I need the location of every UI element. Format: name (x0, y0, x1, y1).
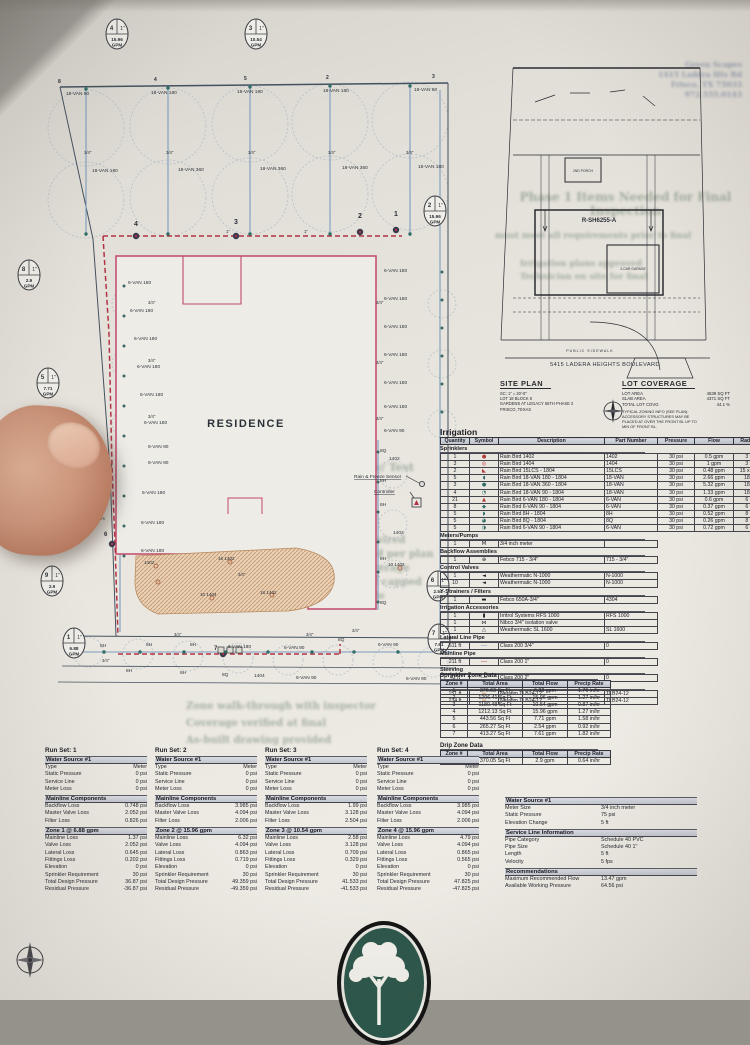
plan-label: 6-VAN 180 (384, 268, 407, 274)
row-label: Static Pressure (155, 771, 192, 778)
row-value: 2.58 psi (348, 835, 367, 842)
row-label: Master Valve Loss (155, 810, 199, 817)
plan-label: 6-VAN 180 (384, 352, 407, 358)
sprinkler-row: 3◎ Rain Bird 14041404 30 psi1 gpm3 ft (441, 461, 750, 468)
sprinkler-row: 3● Rain Bird 18-VAN 360 - 180418-VAN 30 … (441, 482, 750, 489)
plan-label: 5 (244, 76, 247, 82)
mainline-components-bar: Mainline Components (377, 795, 479, 803)
data-row: Pipe CategorySchedule 40 PVC (505, 837, 697, 844)
data-row: Valve Loss4.094 psi (377, 842, 479, 849)
lot-coverage-title: LOT COVERAGE (622, 379, 695, 389)
zone-flag: 51"7.71GPM (37, 368, 59, 398)
zone-flag: 21"15.96GPM (424, 196, 446, 226)
irrigation-legend: Irrigation QuantitySymbolDescriptionPart… (440, 427, 745, 705)
legend-row: 611 ft──Class 200 3/4"0 (441, 642, 658, 649)
zone-header-cell: Precip Rate (568, 751, 611, 758)
row-value: 0 psi (356, 771, 367, 778)
row-value: 30 psi (243, 872, 257, 879)
plan-label: 6-VAN 180 (140, 392, 163, 398)
flag-flow-value: 2.9 (49, 584, 56, 589)
zone-header-cell: Total Area (468, 681, 523, 688)
row-value: 4.79 psi (460, 835, 479, 842)
data-row: TOTAL LOT COVG44.1 % (622, 402, 730, 407)
flag-flow-value: 15.96 (429, 214, 441, 219)
flag-flow-value: 15.96 (111, 37, 123, 42)
bleed-line: Coverage verified at final (186, 715, 436, 732)
plan-label: 1" (304, 229, 308, 234)
plan-label: 18-VAN 90 (66, 91, 89, 97)
data-row: TypeMeter (45, 764, 147, 771)
plan-label: 18-VAN 180 (237, 89, 263, 95)
data-row: Elevation0 psi (45, 864, 147, 871)
plan-label: 6-VAN 180 (228, 644, 251, 650)
zone-flag: 31"10.54GPM (245, 19, 267, 49)
row-value: 0.645 psi (125, 850, 147, 857)
data-row: Master Valve Loss2.052 psi (45, 810, 147, 817)
irrigation-header-cell: Radius (734, 438, 750, 445)
row-value: 1.37 psi (128, 835, 147, 842)
row-label: Service Line (155, 779, 185, 786)
plan-label: 6-VAN 180 (144, 420, 167, 426)
flag-flow-value: 6.88 (70, 646, 79, 651)
row-label: Service Line (377, 779, 407, 786)
north-arrow-icon (600, 397, 626, 425)
row-value: 36.87 psi (125, 879, 147, 886)
sprinkler-row: 4◔ Rain Bird 18-VAN 90 - 180418-VAN 30 p… (441, 489, 750, 496)
data-row: Meter Loss0 psi (265, 786, 367, 793)
row-label: Backflow Loss (377, 803, 411, 810)
plan-label: 8Q (222, 672, 229, 678)
zone-flag: 41"15.96GPM (106, 19, 128, 49)
flag-gpm-label: GPM (251, 43, 262, 48)
data-row: Backflow Loss1.99 psi (265, 803, 367, 810)
run-set-4: Run Set: 4 Water Source #1 TypeMeterStat… (377, 747, 479, 893)
flag-valve-size: 1" (120, 26, 125, 32)
irrigation-header-cell: Part Number (605, 438, 658, 445)
row-value: 4.094 psi (235, 842, 257, 849)
flag-valve-size: 1" (438, 203, 443, 209)
sidewalk-label: PUBLIC SIDEWALK (566, 349, 613, 353)
row-value: Meter (465, 764, 479, 771)
section-title: Meters/Pumps (440, 533, 645, 540)
zone-row: 6265.27 Sq Ft2.54 gpm0.92 in/hr (441, 723, 611, 730)
section-table: 1M3/4 inch meter (440, 540, 658, 548)
row-label: Static Pressure (45, 771, 82, 778)
row-label: Backflow Loss (265, 803, 299, 810)
legend-row: 1⊕Febco 715 - 3/4"715 - 3/4" (441, 557, 658, 564)
plan-label: 6-VAN 180 (384, 324, 407, 330)
row-value: 0 psi (468, 786, 479, 793)
row-value: 0 psi (136, 779, 147, 786)
run-set-title: Run Set: 1 (45, 747, 147, 754)
zone-row: 21206.41 Sq Ft15.96 gpm1.27 in/hr (441, 695, 611, 702)
zone-header-row: Zone #Total AreaTotal FlowPrecip Rate (441, 681, 611, 688)
data-row: TypeMeter (265, 764, 367, 771)
sprinkler-row: 5◑ Rain Bird 6-VAN 90 - 18046-VAN 30 psi… (441, 525, 750, 532)
plan-label: 3/4" (248, 150, 256, 155)
row-value: 3.985 psi (235, 803, 257, 810)
zone-header-cell: Total Flow (523, 751, 568, 758)
mainline-components-bar: Mainline Components (155, 795, 257, 803)
plan-label: 10 1402 (388, 562, 405, 567)
section-title: Lateral Line Pipe (440, 635, 645, 642)
row-value: Meter (353, 764, 367, 771)
recommendations-bar: Recommendations (505, 868, 697, 876)
row-label: Total Design Pressure (377, 879, 430, 886)
flag-flow-value: 10.54 (250, 37, 262, 42)
row-label: Elevation (45, 864, 67, 871)
section-table: 1▬Febco 650A-3/4"4304 (440, 596, 658, 604)
row-value: 5 ft (601, 820, 697, 827)
row-value: 0.863 psi (235, 850, 257, 857)
data-row: Master Valve Loss3.128 psi (265, 810, 367, 817)
row-label: Static Pressure (377, 771, 414, 778)
flag-valve-size: 1" (55, 573, 60, 579)
plan-label: 18-VAN 180 (418, 164, 444, 170)
plan-label: 6-VAN 90 (406, 676, 427, 682)
legend-row: 1◄Weathermatic N-1000N-1000 (441, 573, 658, 580)
plan-label: 8H (190, 642, 197, 648)
row-label: Mainline Loss (155, 835, 188, 842)
plan-label: 4 (134, 221, 138, 228)
row-label: Meter Loss (377, 786, 404, 793)
compass-rose-icon (10, 936, 50, 986)
row-value: 0.748 psi (125, 803, 147, 810)
row-value: 0.865 psi (457, 850, 479, 857)
row-label: Mainline Loss (377, 835, 410, 842)
row-label: Type (265, 764, 277, 771)
row-value: Schedule 40 PVC (601, 837, 697, 844)
row-value: 4.094 psi (235, 810, 257, 817)
irrigation-header-cell: Quantity (441, 438, 470, 445)
data-row: Backflow Loss3.985 psi (377, 803, 479, 810)
plan-label: 3/4" (352, 628, 360, 633)
plan-label: 6-VAN 180 (134, 336, 157, 342)
row-value: 6.32 psi (238, 835, 257, 842)
zone-header-cell: Precip Rate (568, 681, 611, 688)
sprinkler-row: 1● Rain Bird 14021402 30 psi0.5 gpm3 ft (441, 454, 750, 461)
row-label: Residual Pressure (265, 886, 309, 893)
row-value: 0.719 psi (235, 857, 257, 864)
plan-label: 3/4" (376, 416, 384, 421)
data-row: Mainline Loss1.37 psi (45, 835, 147, 842)
section-title: Backflow Assemblies (440, 549, 645, 556)
irrigation-header-cell: Symbol (470, 438, 499, 445)
row-value: 41.533 psi (342, 879, 367, 886)
plan-label: 8H (126, 668, 133, 674)
irrigation-header-row: QuantitySymbolDescriptionPart NumberPres… (441, 438, 750, 445)
plan-label: 1 (394, 211, 398, 218)
section-table: 1▮Irritrol Systems RFS 1000RFS 10001⋈Nib… (440, 612, 658, 634)
data-row: Mainline Loss6.32 psi (155, 835, 257, 842)
data-row: Residual Pressure-49.359 psi (155, 886, 257, 893)
sprinkler-row: 5◖ Rain Bird 18-VAN 180 - 180418-VAN 30 … (441, 475, 750, 482)
plan-label: 3/4" (376, 360, 384, 365)
row-label: Filter Loss (45, 818, 70, 825)
summary-water-source-bar: Water Source #1 (505, 797, 697, 805)
plan-label: 6-VAN 180 (384, 380, 407, 386)
data-row: Static Pressure0 psi (155, 771, 257, 778)
sprinkler-zone-table: Zone #Total AreaTotal FlowPrecip Rate 13… (440, 680, 611, 738)
row-label: Type (377, 764, 389, 771)
data-row: Velocity5 fps (505, 859, 697, 866)
zone-bar: Zone 3 @ 10.54 gpm (265, 827, 367, 835)
plan-label: 18-VAN 360 (260, 166, 286, 172)
plan-label: 3 (234, 219, 238, 226)
row-label: Elevation (377, 864, 399, 871)
row-value: 2.052 psi (125, 842, 147, 849)
plan-label: 8Q (338, 637, 345, 643)
sprinkler-row: 5◗ Rain Bird 8H - 18048H 30 psi0.52 gpm8… (441, 510, 750, 517)
data-row: Elevation Change5 ft (505, 820, 697, 827)
zone-header-cell: Total Flow (523, 681, 568, 688)
plan-label: 2 (326, 75, 329, 81)
zone-flag: 81"2.9GPM (18, 260, 40, 290)
data-row: Total Design Pressure47.825 psi (377, 879, 479, 886)
data-row: Valve Loss3.128 psi (265, 842, 367, 849)
plan-label: 6-VAN 180 (384, 296, 407, 302)
zone-bar: Zone 2 @ 15.96 gpm (155, 827, 257, 835)
data-row: Static Pressure0 psi (45, 771, 147, 778)
data-row: Total Design Pressure36.87 psi (45, 879, 147, 886)
plan-label: 8H (180, 670, 187, 676)
data-row: Meter Loss0 psi (155, 786, 257, 793)
row-label: Backflow Loss (155, 803, 189, 810)
row-value: 13.47 gpm (601, 876, 697, 883)
row-value: 0 psi (468, 864, 479, 871)
row-label: Lateral Loss (265, 850, 294, 857)
plan-label: 6-VAN 90 (148, 444, 169, 450)
data-row: Total Design Pressure41.533 psi (265, 879, 367, 886)
plan-label: 6-VAN 90 (384, 428, 405, 434)
plan-label: 6-VAN 90 (148, 460, 169, 466)
plan-label: Rain & Freeze Sensor (354, 474, 402, 480)
plan-label: 8H (380, 502, 387, 508)
water-source-summary: Water Source #1 Meter Size3/4 inch meter… (505, 795, 697, 891)
water-source-bar: Water Source #1 (45, 756, 147, 764)
row-value: 4.094 psi (457, 810, 479, 817)
row-label: Length (505, 851, 601, 858)
data-row: Pipe SizeSchedule 40 1" (505, 844, 697, 851)
water-source-bar: Water Source #1 (377, 756, 479, 764)
flag-valve-size: 1" (259, 26, 264, 32)
bleed-list3: Zone walk-through with inspectorCoverage… (186, 698, 436, 749)
plan-label: 18 1402 (260, 590, 277, 595)
plan-label: 3/4" (174, 632, 182, 637)
data-row: Master Valve Loss4.094 psi (155, 810, 257, 817)
row-label: Meter Loss (265, 786, 292, 793)
lot-coverage-rows: LOT AREA4639 SQ FTSLAB AREA4371 SQ FTTOT… (622, 391, 738, 407)
row-value: 0 psi (246, 779, 257, 786)
section-table: 1◄Weathermatic N-1000N-100010◄Weathermat… (440, 572, 658, 587)
data-row: Valve Loss4.094 psi (155, 842, 257, 849)
plan-label: 3/4" (166, 150, 174, 155)
data-row: Fittings Loss0.329 psi (265, 857, 367, 864)
plan-label: 18-VAN 90 (414, 87, 437, 93)
legend-row: 1▬Febco 650A-3/4"4304 (441, 596, 658, 603)
section-table: 611 ft──Class 200 3/4"0 (440, 642, 658, 650)
water-source-bar: Water Source #1 (265, 756, 367, 764)
data-row: Fittings Loss0.565 psi (377, 857, 479, 864)
row-label: Total Design Pressure (45, 879, 98, 886)
row-label: Velocity (505, 859, 601, 866)
plan-label: 3/4" (84, 150, 92, 155)
flag-valve-size: 1" (32, 267, 37, 273)
row-label: Elevation (155, 864, 177, 871)
row-value: -49.359 psi (230, 886, 257, 893)
row-label: Sprinkler Requirement (45, 872, 99, 879)
row-label: Mainline Loss (265, 835, 298, 842)
plan-label: 10 1404 (200, 592, 217, 597)
plan-label: 1404 (254, 673, 265, 679)
irrigation-header-cell: Description (499, 438, 605, 445)
plan-label: 3/4" (238, 572, 246, 577)
section-title: Irrigation Accessories (440, 605, 645, 612)
plan-label: 18-VAN 360 (342, 165, 368, 171)
plan-label: 6-VAN 180 (137, 364, 160, 370)
data-row: Mainline Loss2.58 psi (265, 835, 367, 842)
site-plan-title: SITE PLAN (500, 379, 551, 389)
row-value: 3.128 psi (345, 810, 367, 817)
row-value: 1.99 psi (348, 803, 367, 810)
zone-bar: Zone 1 @ 6.88 gpm (45, 827, 147, 835)
data-row: Lateral Loss0.865 psi (377, 850, 479, 857)
residence-label: RESIDENCE (207, 418, 285, 430)
plan-label: 6-VAN 180 (130, 308, 153, 314)
flag-gpm-label: GPM (112, 43, 123, 48)
row-label: Sprinkler Requirement (155, 872, 209, 879)
plan-label: 8Q (380, 448, 387, 454)
data-row: Fittings Loss0.202 psi (45, 857, 147, 864)
plan-label: 8H (380, 556, 387, 562)
row-label: Maximum Recommended Flow (505, 876, 601, 883)
section-title: Mainline Pipe (440, 651, 645, 658)
sprinkler-row: 5◕ Rain Bird 8Q - 18048Q 30 psi0.26 gpm8… (441, 517, 750, 524)
row-value: 0 psi (356, 779, 367, 786)
row-value: Meter (133, 764, 147, 771)
row-label: Fittings Loss (265, 857, 295, 864)
plan-label: 16 1402 (218, 556, 235, 561)
row-value: 0 psi (468, 771, 479, 778)
plan-label: 3 (432, 74, 435, 80)
data-row: Residual Pressure-41.533 psi (265, 886, 367, 893)
plan-label: Controller (374, 489, 395, 495)
row-label: Valve Loss (155, 842, 181, 849)
plan-label: 6-VAN 180 (142, 490, 165, 496)
thumb (0, 402, 117, 561)
zone-flag: 91"2.9GPM (41, 566, 63, 596)
legend-row: 1△Weathermatic SL 1600SL 1600 (441, 626, 658, 633)
plan-label: 3/4" (148, 358, 156, 363)
sprinkler-zone-data: Sprinkler Zone Data Zone #Total AreaTota… (440, 672, 600, 738)
zone-row: 5443.56 Sq Ft7.71 gpm1.58 in/hr (441, 716, 611, 723)
plan-label: 3/4" (328, 150, 336, 155)
data-row: Lateral Loss0.863 psi (155, 850, 257, 857)
data-row: Fittings Loss0.719 psi (155, 857, 257, 864)
row-label: Master Valve Loss (45, 810, 89, 817)
data-row: Master Valve Loss4.094 psi (377, 810, 479, 817)
site-address-label: 5415 LADERA HEIGHTS BOULEVARD (550, 362, 660, 368)
row-value: 0 psi (356, 864, 367, 871)
row-label: Lateral Loss (377, 850, 406, 857)
flag-gpm-label: GPM (47, 590, 58, 595)
row-value: 30 psi (353, 872, 367, 879)
sprinkler-row: 21▲ Rain Bird 6-VAN 180 - 18046-VAN 30 p… (441, 496, 750, 503)
row-value: -47.825 psi (452, 886, 479, 893)
plan-id-label: R-SH6255-A (582, 218, 617, 224)
data-row: Service Line0 psi (45, 779, 147, 786)
data-row: Static Pressure0 psi (265, 771, 367, 778)
data-row: Filter Loss2.006 psi (377, 818, 479, 825)
plan-label: 6-VAN 180 (141, 520, 164, 526)
row-label: Lateral Loss (155, 850, 184, 857)
row-value: 2.006 psi (235, 818, 257, 825)
flag-gpm-label: GPM (43, 392, 54, 397)
row-label: Valve Loss (377, 842, 403, 849)
sprinkler-zone-title: Sprinkler Zone Data (440, 673, 598, 680)
row-label: Pipe Category (505, 837, 601, 844)
mainline-components-bar: Mainline Components (45, 795, 147, 803)
row-value: 4.094 psi (457, 842, 479, 849)
plan-label: 8H (100, 643, 107, 649)
plan-label: 1402 (144, 560, 155, 565)
plan-label: 18-VAN 180 (151, 90, 177, 96)
row-value: 0.202 psi (125, 857, 147, 864)
row-label: Residual Pressure (155, 886, 199, 893)
plan-label: 6-VAN 180 (384, 404, 407, 410)
row-value: -41.533 psi (340, 886, 367, 893)
row-value: 64.56 psi (601, 883, 697, 890)
data-row: Service Line0 psi (265, 779, 367, 786)
row-label: Sprinkler Requirement (265, 872, 319, 879)
plan-label: 1402 (393, 530, 404, 536)
row-value: Meter (243, 764, 257, 771)
irrigation-header-cell: Pressure (658, 438, 695, 445)
company-logo (337, 921, 431, 1045)
plan-label: 2 (358, 213, 362, 220)
zone-row: 1376.63 Sq Ft6.88 gpm1.76 in/hr (441, 688, 611, 695)
row-value: 47.825 psi (454, 879, 479, 886)
row-label: Filter Loss (265, 818, 290, 825)
plan-label: 3/4" (306, 632, 314, 637)
row-value: 2.052 psi (125, 810, 147, 817)
data-row: Residual Pressure-36.87 psi (45, 886, 147, 893)
run-set-1: Run Set: 1 Water Source #1 TypeMeterStat… (45, 747, 147, 893)
plan-label: 3/4" (376, 300, 384, 305)
row-label: Residual Pressure (377, 886, 421, 893)
plan-label: 8 (58, 79, 61, 85)
section-table: 211 ft╌╌Class 200 1"0 (440, 658, 658, 666)
data-row: Sprinkler Requirement30 psi (45, 872, 147, 879)
row-label: Meter Loss (155, 786, 182, 793)
row-value: 3.128 psi (345, 842, 367, 849)
data-row: Static Pressure75 psi (505, 812, 697, 819)
run-set-title: Run Set: 3 (265, 747, 367, 754)
row-label: Type (155, 764, 167, 771)
row-label: Residual Pressure (45, 886, 89, 893)
row-label: Elevation Change (505, 820, 601, 827)
tree-logo-icon (341, 925, 418, 1032)
row-label: Valve Loss (45, 842, 71, 849)
row-value: 2.504 psi (345, 818, 367, 825)
row-label: Total Design Pressure (265, 879, 318, 886)
flag-gpm-label: GPM (69, 652, 80, 657)
data-row: Available Working Pressure64.56 psi (505, 883, 697, 890)
rain-sensor-symbol (419, 481, 424, 486)
run-set-title: Run Set: 2 (155, 747, 257, 754)
data-row: TypeMeter (377, 764, 479, 771)
flag-flow-value: 2.9 (26, 278, 33, 283)
